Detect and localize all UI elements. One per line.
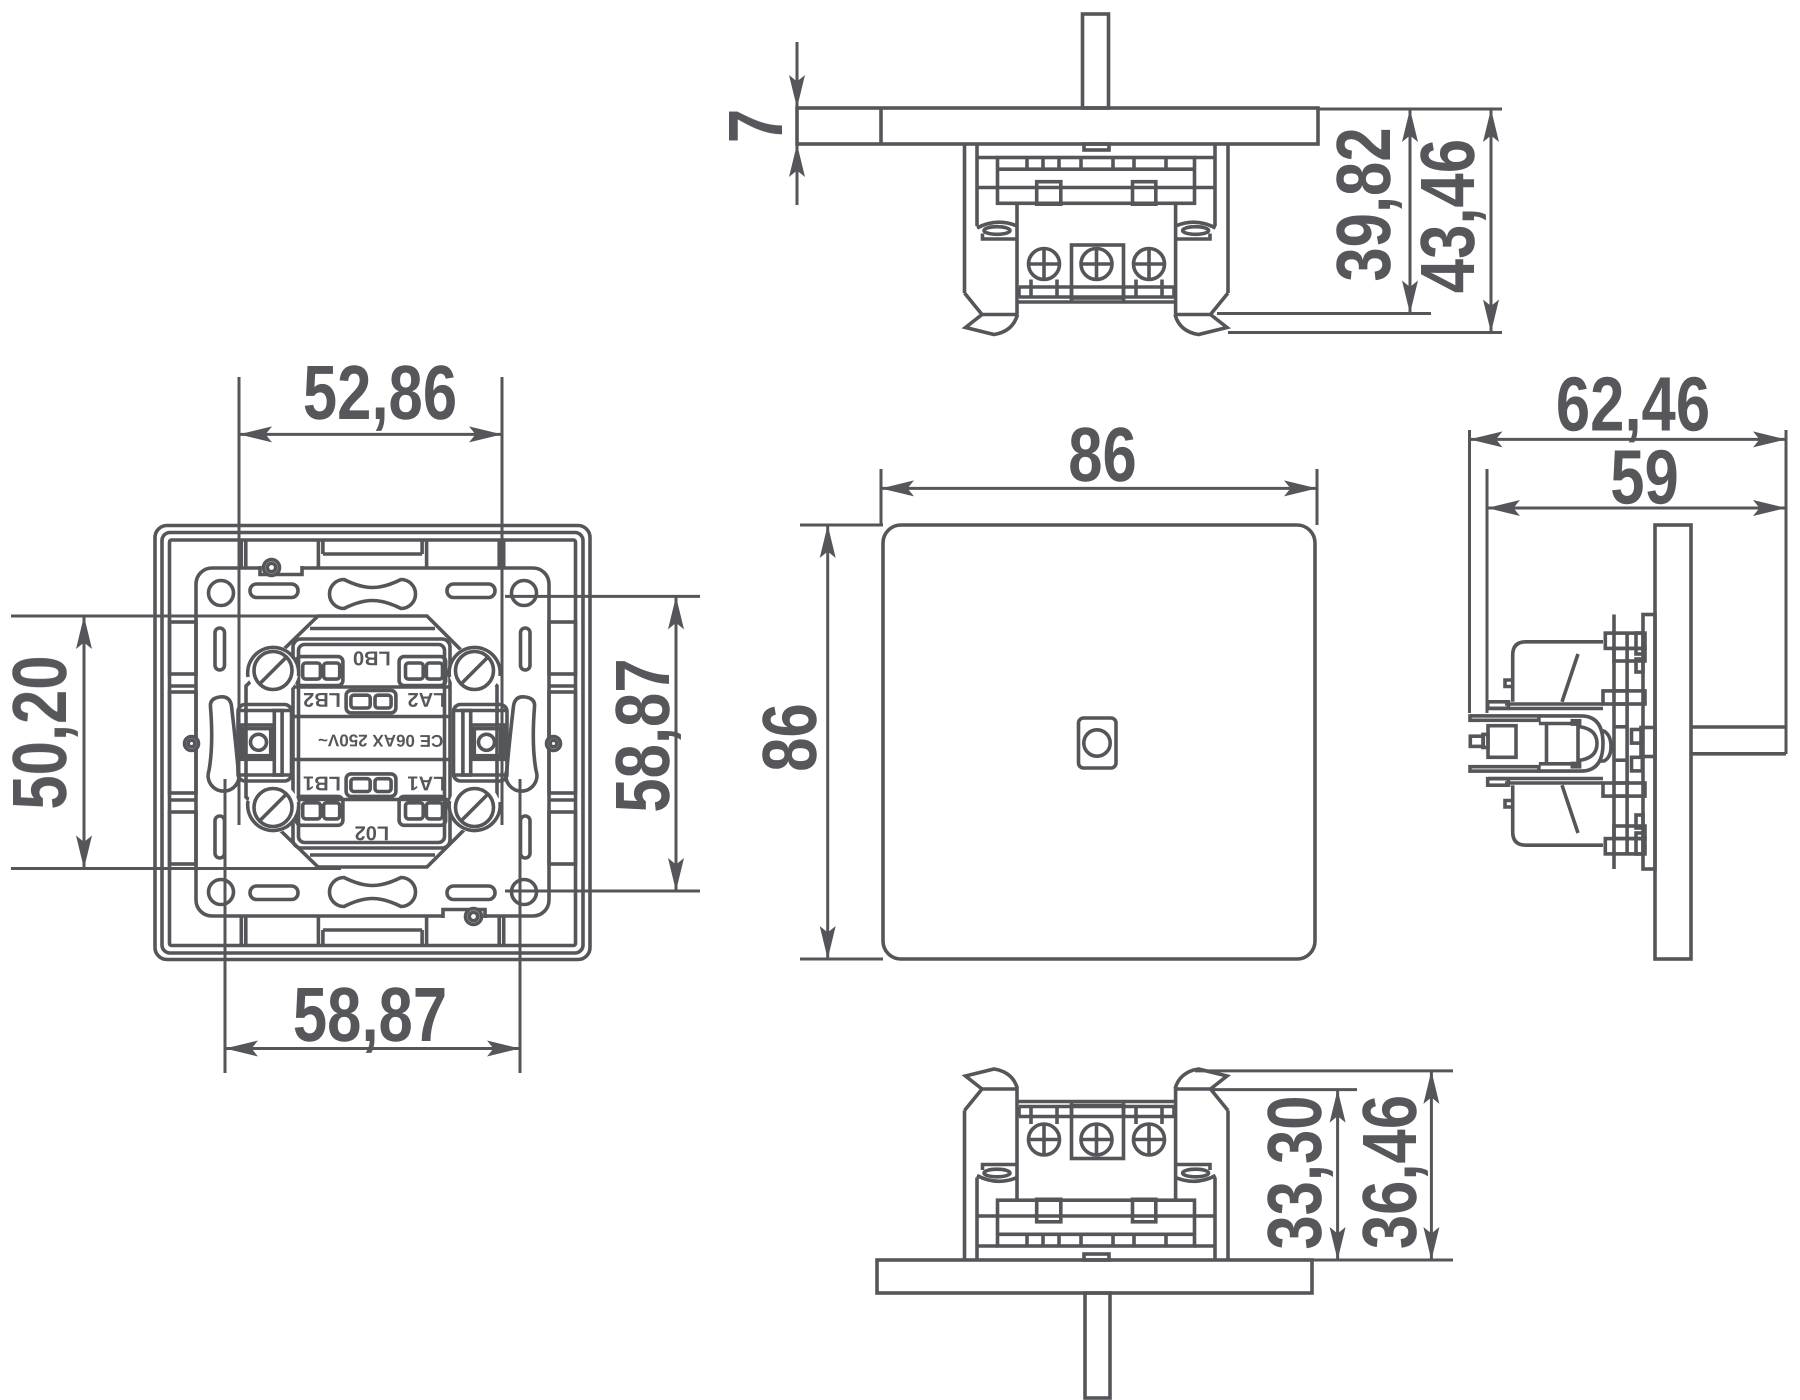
svg-text:50,20: 50,20 (0, 655, 83, 809)
svg-text:52,86: 52,86 (303, 350, 457, 436)
svg-text:59: 59 (1610, 435, 1679, 521)
svg-text:7: 7 (713, 109, 799, 143)
svg-text:39,82: 39,82 (1321, 127, 1407, 281)
svg-text:58,87: 58,87 (600, 658, 686, 812)
svg-text:LB0: LB0 (353, 646, 391, 668)
svg-text:58,87: 58,87 (293, 972, 447, 1058)
svg-text:LA1: LA1 (407, 772, 445, 794)
svg-text:CE 06AX 250V~: CE 06AX 250V~ (318, 730, 443, 750)
svg-text:LB1: LB1 (303, 772, 341, 794)
svg-text:33,30: 33,30 (1252, 1096, 1338, 1250)
svg-text:LB2: LB2 (303, 688, 341, 710)
svg-text:43,46: 43,46 (1405, 139, 1491, 293)
svg-text:L02: L02 (355, 821, 390, 843)
svg-text:86: 86 (747, 703, 833, 772)
svg-text:36,46: 36,46 (1347, 1095, 1433, 1249)
svg-text:LA2: LA2 (407, 688, 445, 710)
svg-text:86: 86 (1068, 412, 1137, 498)
